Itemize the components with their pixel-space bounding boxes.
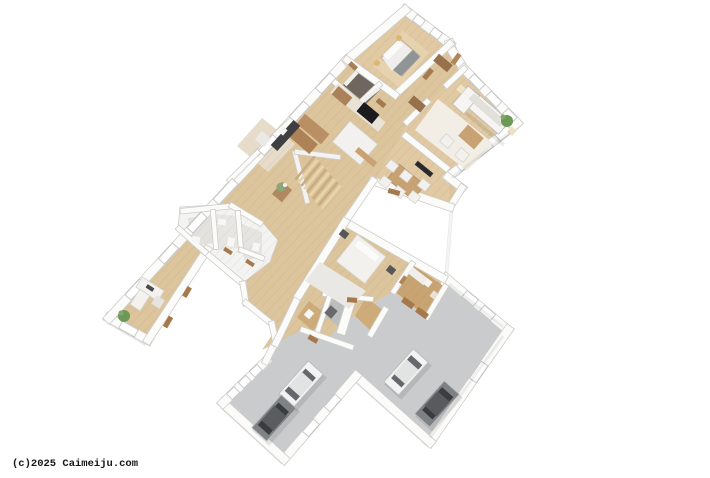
svg-text:(c)2025 Caimeiju.com: (c)2025 Caimeiju.com <box>12 458 138 470</box>
